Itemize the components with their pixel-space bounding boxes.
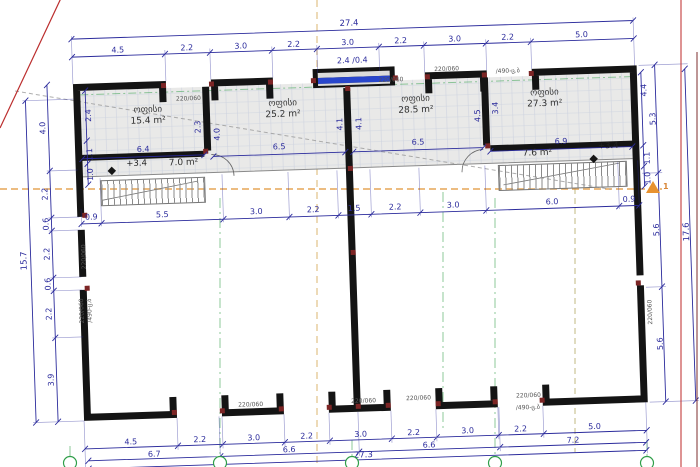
- grid-bubbles: [64, 457, 654, 467]
- section-marker-number: 1: [663, 182, 669, 191]
- construction-line-diagonal: [0, 0, 62, 128]
- drawing-canvas: 27.4 4.5 2.2 3.0 2.2 3.0 2.2 3.0 2.2 5.0…: [0, 0, 700, 467]
- section-marker-icon: [646, 181, 660, 193]
- overlay-layer: [0, 0, 700, 467]
